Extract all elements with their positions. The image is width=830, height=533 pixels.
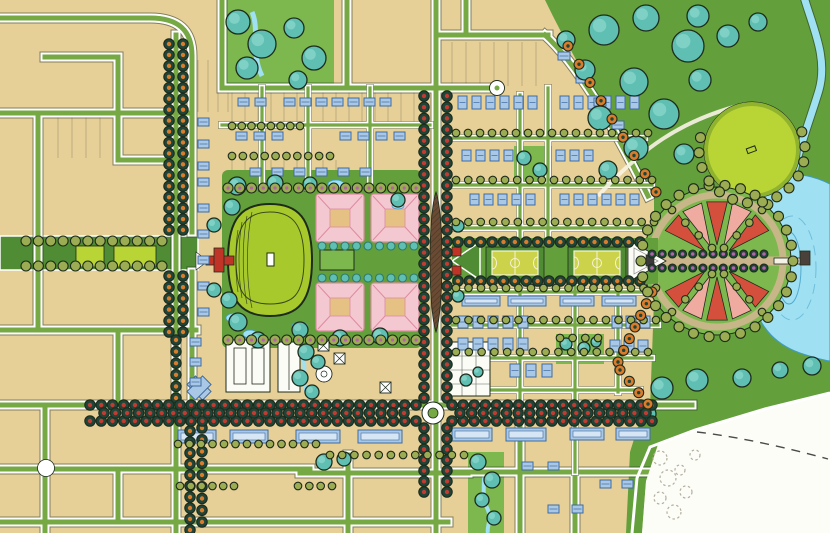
tree-crown-dot — [493, 411, 497, 415]
tree — [800, 142, 810, 152]
tree-crown-dot — [167, 274, 171, 278]
tree — [304, 152, 312, 160]
tree — [232, 440, 240, 448]
tree-crown-dot — [144, 403, 148, 407]
tree-crown-dot — [422, 362, 426, 366]
tree — [786, 240, 796, 250]
tree-crown-dot — [581, 279, 585, 283]
tree — [682, 219, 690, 227]
tree-crown-dot — [467, 279, 471, 283]
tree-crown-dot — [632, 154, 635, 157]
tree-crown-dot — [211, 419, 215, 423]
tree — [477, 176, 485, 184]
tree — [296, 122, 304, 130]
tree-crown-dot — [616, 419, 620, 423]
tree-crown-dot — [632, 411, 636, 415]
tree — [387, 242, 395, 250]
tree — [387, 451, 395, 459]
tree-cluster-highlight — [209, 220, 215, 226]
tree — [239, 152, 247, 160]
tree-crown-dot — [181, 42, 185, 46]
building-roof — [233, 433, 265, 440]
tree-crown-dot — [122, 403, 126, 407]
tree-crown-dot — [181, 195, 185, 199]
tree — [781, 225, 791, 235]
tree-crown-dot — [711, 266, 715, 270]
tree-crown-dot — [422, 161, 426, 165]
tree-crown-dot — [313, 419, 317, 423]
tree-cluster-highlight — [229, 13, 240, 24]
tree-cluster-highlight — [805, 359, 813, 367]
tree-crown-dot — [504, 411, 508, 415]
tree — [502, 218, 510, 226]
tree-crown-dot — [166, 419, 170, 423]
tree-cluster-highlight — [591, 109, 602, 120]
tree-crown-dot — [167, 162, 171, 166]
tree — [548, 129, 556, 137]
tree — [674, 190, 684, 200]
great-lawn-oval — [228, 204, 312, 316]
tree-cluster-highlight — [720, 28, 730, 38]
tree-crown-dot — [167, 97, 171, 101]
tree-crown-dot — [369, 419, 373, 423]
tree-crown-dot — [570, 240, 574, 244]
tree-crown-dot — [403, 338, 406, 341]
tree-cluster-highlight — [251, 34, 264, 47]
tree-crown-dot — [133, 403, 137, 407]
tree-crown-dot — [558, 240, 562, 244]
tree-crown-dot — [181, 97, 185, 101]
tree-crown-dot — [279, 403, 283, 407]
tree — [46, 261, 56, 271]
tree — [720, 332, 730, 342]
tree-cluster-highlight — [462, 376, 467, 381]
tree — [286, 122, 294, 130]
tree-crown-dot — [234, 419, 238, 423]
tree-crown-dot — [346, 419, 350, 423]
tree-crown-dot — [263, 411, 267, 415]
tree-crown-dot — [732, 252, 736, 256]
tree-crown-dot — [188, 506, 192, 510]
tree-crown-dot — [445, 105, 449, 109]
tree-crown-dot — [528, 403, 532, 407]
tree-crown-dot — [188, 429, 192, 433]
tree-crown-dot — [445, 436, 449, 440]
tree — [516, 348, 524, 356]
tree — [526, 218, 534, 226]
tree-cluster-highlight — [559, 33, 567, 41]
tree-crown-dot — [356, 186, 359, 189]
tree — [501, 176, 509, 184]
tree-crown-dot — [650, 252, 654, 256]
tree-crown-dot — [181, 296, 185, 300]
tree — [228, 122, 236, 130]
tree-crown-dot — [494, 419, 498, 423]
tree-crown-dot — [422, 373, 426, 377]
tree — [742, 198, 752, 208]
tree — [328, 482, 336, 490]
tree-crown-dot — [742, 266, 746, 270]
tree — [376, 242, 384, 250]
tree — [341, 274, 349, 282]
tree — [452, 129, 460, 137]
tree-crown-dot — [245, 403, 249, 407]
tree — [608, 129, 616, 137]
tree-crown-dot — [200, 473, 204, 477]
tree — [601, 218, 609, 226]
tree — [788, 256, 798, 266]
tree-crown-dot — [223, 419, 227, 423]
tree-crown-dot — [188, 473, 192, 477]
tree — [577, 316, 585, 324]
tree — [326, 451, 334, 459]
tree-crown-dot — [174, 373, 178, 377]
tree — [312, 440, 320, 448]
tree — [527, 316, 535, 324]
tree-cluster-highlight — [677, 147, 686, 156]
tree-crown-dot — [181, 184, 185, 188]
tree-crown-dot — [539, 419, 543, 423]
tree-crown-dot — [445, 183, 449, 187]
tree-crown-dot — [144, 419, 148, 423]
tree-crown-dot — [181, 274, 185, 278]
tree — [515, 284, 523, 292]
tree — [157, 261, 167, 271]
tree — [33, 236, 43, 246]
tree-crown-dot — [189, 403, 193, 407]
tree-crown-dot — [550, 403, 554, 407]
tree-crown-dot — [88, 403, 92, 407]
tree — [615, 316, 623, 324]
tree-crown-dot — [422, 139, 426, 143]
tree-crown-dot — [445, 426, 449, 430]
tree-crown-dot — [422, 468, 426, 472]
tree-cluster-highlight — [300, 346, 307, 353]
tree-crown-dot — [732, 266, 736, 270]
tree-crown-dot — [380, 403, 384, 407]
tree-crown-dot — [422, 105, 426, 109]
tree-crown-dot — [422, 351, 426, 355]
tree — [399, 451, 407, 459]
tree-crown-dot — [181, 285, 185, 289]
tree — [70, 236, 80, 246]
tree-crown-dot — [290, 403, 294, 407]
tree-crown-dot — [445, 262, 449, 266]
tree-crown-dot — [605, 419, 609, 423]
tree-crown-dot — [414, 186, 417, 189]
tree-crown-dot — [422, 228, 426, 232]
tree-cluster-highlight — [593, 19, 607, 33]
tree-crown-dot — [445, 250, 449, 254]
tree-crown-dot — [588, 81, 591, 84]
tree — [198, 482, 206, 490]
tree-crown-dot — [618, 368, 621, 371]
tree-crown-dot — [671, 266, 675, 270]
tree-crown-dot — [422, 262, 426, 266]
tree — [399, 242, 407, 250]
tree-cluster-highlight — [294, 372, 301, 379]
tree-crown-dot — [313, 403, 317, 407]
building-roof — [509, 431, 543, 438]
tree — [46, 236, 56, 246]
tree — [569, 334, 577, 342]
tree-crown-dot — [367, 338, 370, 341]
tree-crown-dot — [380, 419, 384, 423]
tree — [576, 218, 584, 226]
tree-crown-dot — [194, 411, 198, 415]
tree — [21, 236, 31, 246]
tree — [631, 348, 639, 356]
tree — [95, 261, 105, 271]
tree — [565, 316, 573, 324]
tree-crown-dot — [594, 419, 598, 423]
tree-crown-dot — [467, 240, 471, 244]
tree-crown-dot — [762, 252, 766, 256]
tree-crown-dot — [513, 279, 517, 283]
tree-crown-dot — [332, 186, 335, 189]
tree — [643, 225, 653, 235]
tree-cluster-highlight — [624, 72, 637, 85]
tree — [452, 176, 460, 184]
cul-de-sac-island — [495, 86, 500, 91]
tree-crown-dot — [238, 338, 241, 341]
tree-crown-dot — [422, 396, 426, 400]
tree-crown-dot — [174, 349, 178, 353]
tree-crown-dot — [358, 419, 362, 423]
tree-crown-dot — [461, 419, 465, 423]
tree-crown-dot — [456, 279, 460, 283]
tree — [524, 129, 532, 137]
tree — [452, 284, 460, 292]
tree-cluster-highlight — [393, 195, 399, 201]
tree — [145, 236, 155, 246]
tree — [448, 451, 456, 459]
tree-crown-dot — [379, 411, 383, 415]
tree-crown-dot — [616, 360, 619, 363]
tree-crown-dot — [167, 140, 171, 144]
tree-crown-dot — [234, 403, 238, 407]
tree — [248, 122, 256, 130]
tree — [330, 242, 338, 250]
tree-crown-dot — [344, 411, 348, 415]
building-roof — [511, 299, 543, 303]
building-roof — [563, 299, 591, 303]
tree-crown-dot — [174, 396, 178, 400]
tree-crown-dot — [148, 411, 152, 415]
tree — [465, 218, 473, 226]
tree-crown-dot — [324, 419, 328, 423]
tree-crown-dot — [178, 403, 182, 407]
tree — [529, 348, 537, 356]
tree-crown-dot — [445, 239, 449, 243]
tree — [648, 176, 656, 184]
tree — [500, 129, 508, 137]
tree-crown-dot — [174, 361, 178, 365]
tree-crown-dot — [200, 496, 204, 500]
tree-crown-dot — [479, 279, 483, 283]
tree-cluster-highlight — [209, 285, 215, 291]
tree-crown-dot — [167, 64, 171, 68]
tree — [267, 122, 275, 130]
tree-crown-dot — [422, 490, 426, 494]
tree-crown-dot — [245, 419, 249, 423]
tree-cluster-highlight — [676, 34, 690, 48]
tree — [720, 270, 728, 278]
tree-crown-dot — [167, 217, 171, 221]
tree-crown-dot — [445, 217, 449, 221]
tree-crown-dot — [200, 449, 204, 453]
tree — [611, 176, 619, 184]
tree-crown-dot — [581, 240, 585, 244]
tree-crown-dot — [445, 362, 449, 366]
avenue-median — [430, 192, 442, 332]
tree-crown-dot — [539, 403, 543, 407]
mall-pavilion — [452, 247, 461, 256]
tree-crown-dot — [445, 116, 449, 120]
tree-crown-dot — [513, 240, 517, 244]
tree — [651, 211, 661, 221]
tree-crown-dot — [285, 338, 288, 341]
tree — [542, 348, 550, 356]
tree-crown-dot — [422, 284, 426, 288]
tree-crown-dot — [252, 411, 256, 415]
tree-crown-dot — [297, 338, 300, 341]
tree-crown-dot — [167, 173, 171, 177]
campus-mall-lawn — [320, 250, 354, 270]
tree-crown-dot — [188, 517, 192, 521]
tree-cluster-highlight — [231, 315, 239, 323]
tree — [632, 129, 640, 137]
tree-crown-dot — [422, 447, 426, 451]
tree-crown-dot — [660, 252, 664, 256]
tree-crown-dot — [637, 391, 640, 394]
tree-crown-dot — [189, 419, 193, 423]
tree-crown-dot — [250, 338, 253, 341]
tree-crown-dot — [445, 329, 449, 333]
tree — [735, 184, 745, 194]
tree — [638, 218, 646, 226]
tree — [410, 242, 418, 250]
tree-crown-dot — [547, 279, 551, 283]
tree — [436, 451, 444, 459]
tree-crown-dot — [181, 140, 185, 144]
tree-crown-dot — [391, 186, 394, 189]
tree — [255, 440, 263, 448]
tree — [714, 187, 724, 197]
tree — [708, 270, 716, 278]
tree-crown-dot — [181, 206, 185, 210]
tree-crown-dot — [335, 403, 339, 407]
tree-cluster-highlight — [751, 15, 759, 23]
tree-crown-dot — [99, 403, 103, 407]
tree — [638, 272, 648, 282]
tree-crown-dot — [535, 240, 539, 244]
tree-crown-dot — [422, 116, 426, 120]
tree — [70, 261, 80, 271]
tree-crown-dot — [483, 419, 487, 423]
tree — [120, 236, 130, 246]
tree-crown-dot — [167, 307, 171, 311]
tree-crown-dot — [238, 186, 241, 189]
tree — [689, 184, 699, 194]
tree-crown-dot — [188, 462, 192, 466]
tree — [644, 129, 652, 137]
tree-crown-dot — [639, 419, 643, 423]
tree — [58, 236, 68, 246]
tree — [108, 236, 118, 246]
tree-crown-dot — [181, 173, 185, 177]
tree — [351, 451, 359, 459]
tree — [799, 157, 809, 167]
tree-crown-dot — [167, 296, 171, 300]
tree-cluster-highlight — [489, 513, 495, 519]
tree-crown-dot — [181, 217, 185, 221]
tree — [536, 129, 544, 137]
tree-crown-dot — [628, 419, 632, 423]
tree-crown-dot — [167, 206, 171, 210]
tree — [465, 284, 473, 292]
tree-crown-dot — [110, 403, 114, 407]
tree-crown-dot — [572, 403, 576, 407]
tree-crown-dot — [402, 411, 406, 415]
tree — [209, 440, 217, 448]
tree — [503, 348, 511, 356]
tree-crown-dot — [501, 279, 505, 283]
tree-crown-dot — [273, 186, 276, 189]
tree — [261, 152, 269, 160]
tree-crown-dot — [494, 403, 498, 407]
tree-crown-dot — [256, 403, 260, 407]
tree-crown-dot — [671, 252, 675, 256]
tree — [526, 176, 534, 184]
tree-crown-dot — [200, 508, 204, 512]
tree — [83, 236, 93, 246]
tree-crown-dot — [445, 295, 449, 299]
tree — [197, 440, 205, 448]
tree-crown-dot — [226, 338, 229, 341]
tree-crown-dot — [456, 240, 460, 244]
tree-crown-dot — [167, 228, 171, 232]
tree — [661, 200, 671, 210]
tree — [602, 284, 610, 292]
tree-crown-dot — [333, 411, 337, 415]
tree-crown-dot — [622, 349, 625, 352]
tree — [464, 176, 472, 184]
tree-crown-dot — [335, 419, 339, 423]
tree-cluster-highlight — [226, 201, 233, 208]
tree-crown-dot — [528, 419, 532, 423]
tree — [704, 332, 714, 342]
tree — [452, 218, 460, 226]
tree-crown-dot — [181, 75, 185, 79]
tree — [120, 261, 130, 271]
tree — [294, 152, 302, 160]
tree-crown-dot — [516, 419, 520, 423]
tree — [602, 316, 610, 324]
tree — [763, 312, 773, 322]
tree-cluster-highlight — [535, 165, 541, 171]
tree — [266, 440, 274, 448]
tree — [301, 440, 309, 448]
tree-crown-dot — [644, 411, 648, 415]
tree-crown-dot — [290, 419, 294, 423]
tree — [176, 482, 184, 490]
tree-crown-dot — [206, 411, 210, 415]
tree — [674, 322, 684, 332]
tree-crown-dot — [167, 118, 171, 122]
tree-crown-dot — [99, 419, 103, 423]
tree — [33, 261, 43, 271]
